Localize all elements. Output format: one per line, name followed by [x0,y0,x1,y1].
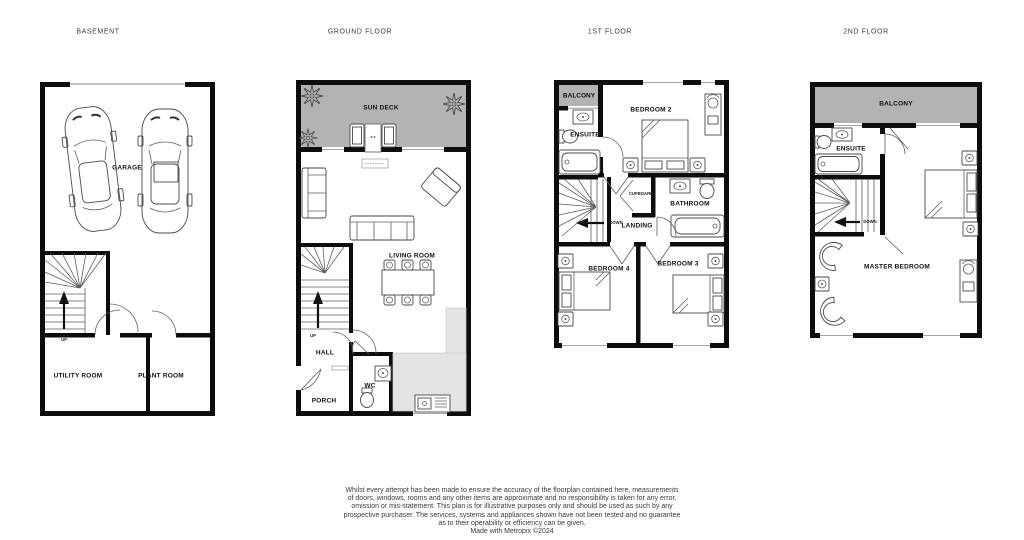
car-right [138,109,192,233]
bathroom-bath [671,215,724,237]
wc-toilet [361,388,374,408]
room-label-balcony-first: BALCONY [563,93,595,100]
room-label-hall: HALL [316,350,334,357]
floor-title-basement: BASEMENT [76,29,119,36]
bathroom-toilet [700,179,714,199]
ground-doors [301,330,376,390]
car-sunroof [154,162,178,182]
disclaimer-line: of doors, windows, rooms and any other i… [0,495,1024,503]
floorplan-page: { "colors": { "deck": "#b3b3b3", "counte… [0,0,1024,540]
room-label-cupboard: CUPBOARD [629,192,653,196]
second-doors [885,128,908,254]
disclaimer-line: Whilst every attempt has been made to en… [0,487,1024,495]
bedside-table [708,254,723,268]
room-label-sundeck: SUN DECK [363,105,399,112]
stairs-label-up-basement: UP [61,338,67,342]
disclaimer-line: prospective purchaser. The services, sys… [0,512,1024,520]
disclaimer-line: omission or mis-statement. This plan is … [0,503,1024,511]
ground-stairs [301,247,349,329]
second-drawing [810,82,982,338]
wardrobe [705,94,721,135]
disclaimer-text: Whilst every attempt has been made to en… [0,487,1024,536]
room-label-plant: PLANT ROOM [138,373,184,380]
sofa-two-seat [302,168,326,218]
bed-double [925,170,977,218]
floorplan-ground: SUN DECK LIVING ROOM HALL WC PORCH UP [296,80,471,416]
armchair [817,239,843,271]
deck-door [365,124,381,152]
armchair [420,167,461,207]
kitchen-sink-unit [415,395,450,412]
ground-drawing [296,80,471,416]
stairs-label-down-second: DOWN [863,220,876,224]
room-label-bedroom4: BEDROOM 4 [588,266,629,273]
bedside-table [690,158,705,172]
floorplan-first: BALCONY ENSUITE BEDROOM 2 CUPBOARD BATHR… [554,80,729,348]
bedside-table [962,151,977,165]
room-label-wc: WC [364,383,375,390]
floor-title-ground: GROUND FLOOR [328,29,392,36]
room-label-bedroom3: BEDROOM 3 [657,261,698,268]
dining-set [382,260,434,305]
bedside-table [708,312,723,326]
stairs-label-up-ground: UP [310,334,316,338]
side-table [815,277,829,291]
bed-double [642,120,688,172]
basement-walls [40,82,215,416]
floor-title-second: 2ND FLOOR [843,29,888,36]
bed-double [559,272,610,310]
porch-step [332,366,348,370]
ensuite-bath [559,150,600,174]
room-label-bedroom2: BEDROOM 2 [630,107,671,114]
room-label-balcony-second: BALCONY [879,101,913,108]
room-label-garage: GARAGE [112,165,142,172]
wardrobe [960,260,977,302]
bed-double [673,275,724,313]
armchair [816,296,845,329]
stairs-label-down-first: DOWN [609,221,622,225]
disclaimer-line: as to their operability or efficiency ca… [0,520,1024,528]
room-label-utility: UTILITY ROOM [54,373,103,380]
bedside-table [558,254,573,268]
room-label-ensuite-second: ENSUITE [836,146,866,153]
ensuite-fixtures-first [559,110,600,174]
floor-title-first: 1ST FLOOR [588,29,632,36]
living-room-furniture [302,167,462,305]
bathroom-fixtures [670,179,724,237]
bedside-table [558,312,573,326]
room-label-bathroom: BATHROOM [670,201,709,208]
bedside-table [623,158,638,172]
room-label-master-bedroom: MASTER BEDROOM [864,264,930,271]
ensuite-bath [815,154,862,174]
room-label-ensuite-first: ENSUITE [570,132,600,139]
bedside-table [963,222,978,236]
room-label-landing: LANDING [621,223,652,230]
basement-stairs [45,253,106,333]
first-stairs [559,179,604,242]
room-label-living: LIVING ROOM [389,253,435,260]
basement-drawing [40,82,215,416]
radiator [362,159,388,168]
floorplan-second: BALCONY ENSUITE MASTER BEDROOM DOWN [810,82,982,338]
sofa-three-seat [350,216,414,240]
ensuite-toilet [815,136,831,149]
first-drawing [554,80,729,348]
floorplan-basement: GARAGE UTILITY ROOM PLANT ROOM UP [40,82,215,416]
room-label-porch: PORCH [312,398,336,405]
made-with-credit: Made with Metropix ©2024 [0,528,1024,536]
